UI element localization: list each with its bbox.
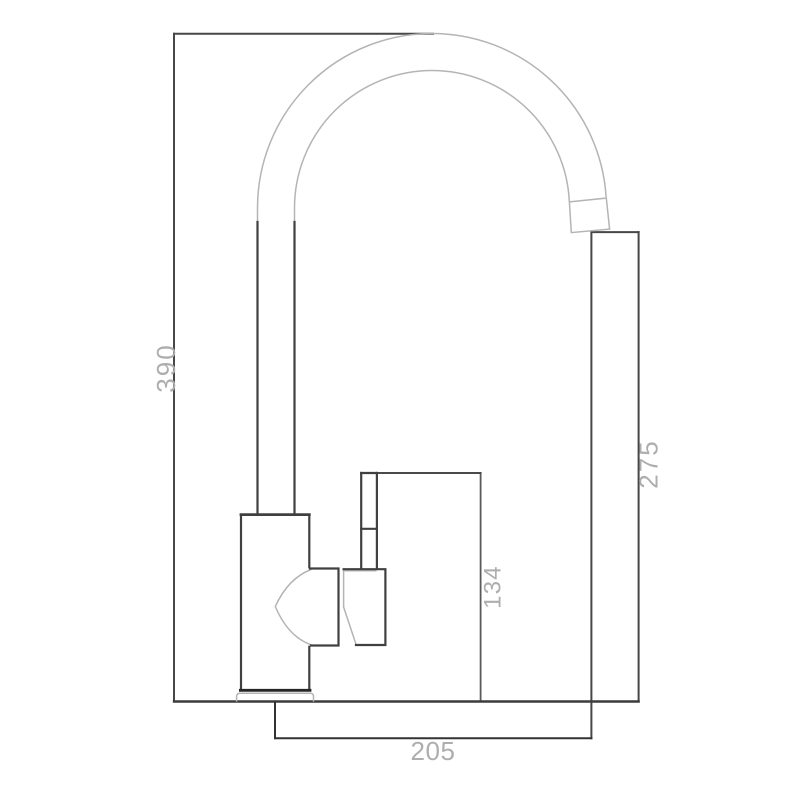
svg-text:275: 275 (634, 439, 664, 488)
svg-text:134: 134 (480, 565, 507, 609)
svg-text:205: 205 (411, 736, 456, 766)
svg-text:390: 390 (151, 343, 181, 392)
